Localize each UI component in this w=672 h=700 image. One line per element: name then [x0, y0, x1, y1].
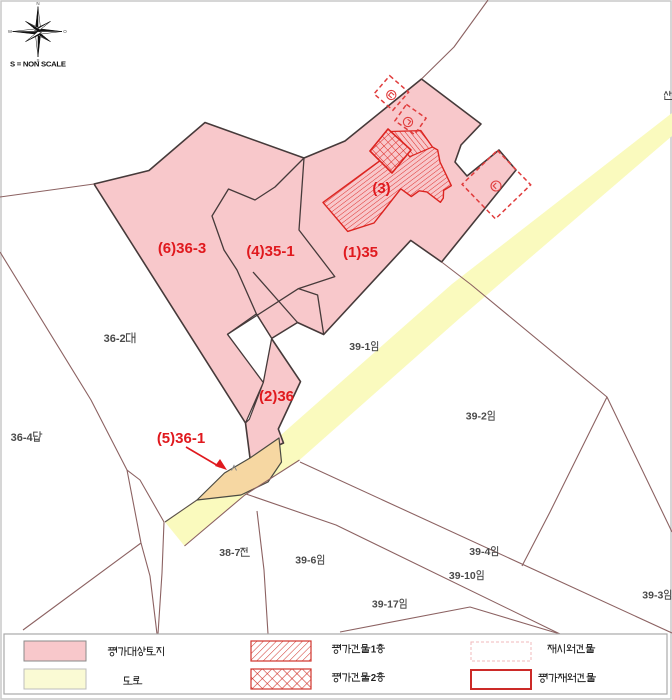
svg-text:(5)36-1: (5)36-1: [157, 430, 205, 447]
svg-text:38-7: 38-7: [219, 547, 240, 559]
svg-text:39-1: 39-1: [349, 341, 370, 353]
svg-text:36-4: 36-4: [11, 432, 34, 444]
svg-text:39-3: 39-3: [642, 590, 663, 602]
svg-text:39-4: 39-4: [469, 546, 490, 558]
svg-text:1: 1: [371, 645, 377, 656]
svg-text:(3): (3): [372, 180, 390, 197]
svg-text:(6)36-3: (6)36-3: [158, 240, 206, 257]
svg-text:(4)35-1: (4)35-1: [246, 243, 294, 260]
svg-text:39-6: 39-6: [295, 555, 316, 567]
svg-text:39-10: 39-10: [449, 570, 476, 582]
svg-text:(1)35: (1)35: [343, 244, 378, 261]
svg-text:O: O: [63, 29, 67, 34]
svg-text:S = NON SCALE: S = NON SCALE: [10, 60, 66, 69]
svg-text:2: 2: [371, 673, 377, 684]
svg-text:N: N: [36, 1, 39, 6]
svg-text:39-17: 39-17: [372, 599, 399, 611]
svg-text:39-2: 39-2: [466, 411, 487, 423]
svg-text:36-2: 36-2: [104, 333, 126, 345]
svg-text:(2)36: (2)36: [259, 388, 294, 405]
